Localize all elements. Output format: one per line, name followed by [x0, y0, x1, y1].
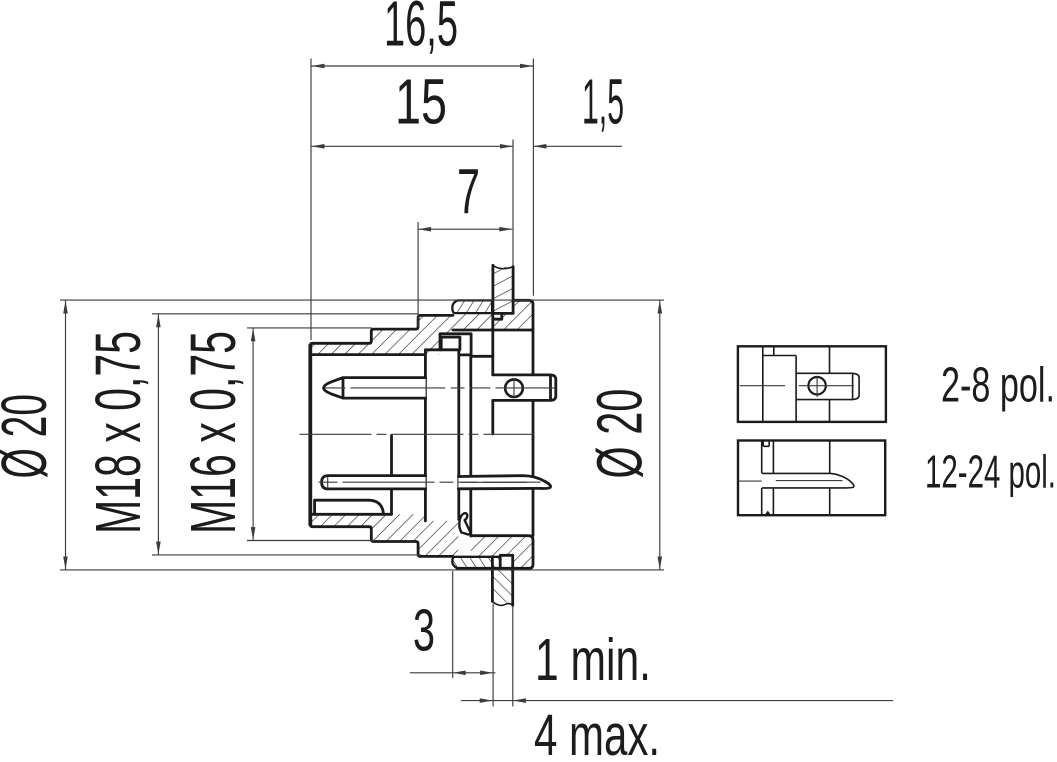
svg-text:Ø 20: Ø 20	[0, 394, 60, 479]
svg-text:4 max.: 4 max.	[534, 703, 660, 762]
svg-text:15: 15	[395, 66, 447, 138]
svg-text:12-24 pol.: 12-24 pol.	[925, 446, 1056, 498]
svg-text:M18 x 0,75: M18 x 0,75	[82, 331, 154, 534]
svg-text:Ø 20: Ø 20	[584, 389, 656, 479]
svg-text:M16 x 0,75: M16 x 0,75	[177, 331, 249, 534]
svg-text:1,5: 1,5	[582, 66, 624, 138]
svg-text:3: 3	[413, 598, 435, 664]
svg-text:7: 7	[457, 156, 480, 228]
svg-text:1 min.: 1 min.	[535, 627, 651, 693]
svg-text:2-8 pol.: 2-8 pol.	[941, 359, 1055, 413]
svg-text:16,5: 16,5	[384, 0, 458, 60]
